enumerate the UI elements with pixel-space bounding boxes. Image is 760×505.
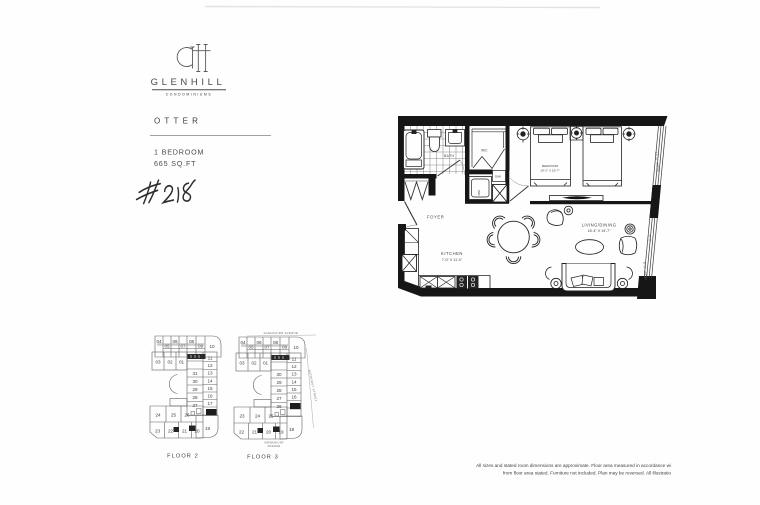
svg-text:OTTER: OTTER	[154, 117, 202, 126]
svg-text:All sizes and stated room dime: All sizes and stated room dimensions are…	[476, 463, 671, 468]
svg-text:FOYER: FOYER	[427, 215, 444, 220]
svg-text:21: 21	[182, 429, 188, 434]
svg-text:22: 22	[168, 429, 174, 434]
svg-text:FLOOR 3: FLOOR 3	[247, 455, 279, 461]
svg-text:5'-0": 5'-0"	[647, 235, 652, 243]
svg-text:1 BEDROOM: 1 BEDROOM	[154, 148, 204, 157]
svg-text:BEDROOM: BEDROOM	[542, 164, 558, 168]
svg-text:LIVING/DINING: LIVING/DINING	[582, 223, 617, 228]
svg-text:02: 02	[251, 361, 257, 366]
svg-text:28: 28	[192, 395, 198, 400]
svg-text:30: 30	[192, 379, 198, 384]
svg-text:24: 24	[255, 414, 261, 419]
svg-text:GLENCAIRN AVENUE: GLENCAIRN AVENUE	[264, 331, 299, 335]
svg-text:31: 31	[192, 371, 198, 376]
svg-text:AVENUE: AVENUE	[267, 444, 280, 448]
svg-text:26: 26	[184, 413, 190, 418]
svg-text:23: 23	[155, 429, 161, 434]
svg-text:29: 29	[276, 380, 282, 385]
svg-text:02: 02	[167, 360, 173, 365]
svg-text:10: 10	[293, 345, 299, 350]
svg-text:D/W: D/W	[495, 175, 501, 179]
svg-text:18: 18	[289, 427, 295, 432]
svg-text:FLOOR 2: FLOOR 2	[167, 454, 199, 460]
svg-text:23: 23	[239, 414, 245, 419]
svg-text:16: 16	[207, 394, 213, 399]
svg-text:W/D: W/D	[477, 190, 481, 195]
svg-text:BATH: BATH	[444, 154, 455, 158]
svg-text:13: 13	[291, 372, 297, 377]
svg-text:15: 15	[291, 387, 297, 392]
svg-text:14: 14	[207, 378, 213, 383]
svg-text:25: 25	[268, 414, 274, 419]
svg-text:12: 12	[291, 364, 297, 369]
svg-text:21: 21	[252, 430, 258, 435]
svg-text:GLENHILL: GLENHILL	[151, 77, 226, 88]
svg-text:11: 11	[292, 357, 297, 362]
svg-text:17: 17	[207, 401, 213, 406]
svg-text:665 SQ.FT: 665 SQ.FT	[154, 159, 196, 168]
svg-text:26: 26	[276, 404, 282, 409]
svg-text:27: 27	[192, 403, 198, 408]
svg-text:11: 11	[208, 356, 213, 361]
svg-text:25: 25	[171, 413, 177, 418]
svg-text:29: 29	[192, 387, 198, 392]
svg-text:16: 16	[291, 395, 297, 400]
svg-text:28: 28	[276, 388, 282, 393]
svg-text:15: 15	[207, 386, 213, 391]
svg-text:22: 22	[239, 430, 245, 435]
svg-text:W/C: W/C	[481, 149, 488, 153]
svg-text:24: 24	[155, 413, 161, 418]
svg-text:from floor area stated. Furnit: from floor area stated. Furniture not in…	[503, 471, 671, 476]
svg-text:7'-0" X 11'-0": 7'-0" X 11'-0"	[442, 258, 463, 262]
svg-text:30: 30	[276, 372, 282, 377]
svg-text:20: 20	[266, 430, 272, 435]
svg-text:12: 12	[207, 363, 213, 368]
svg-text:01: 01	[263, 361, 269, 366]
svg-text:03: 03	[155, 360, 161, 365]
svg-text:CONDOMINIUMS: CONDOMINIUMS	[166, 93, 213, 97]
svg-text:KITCHEN: KITCHEN	[441, 251, 463, 256]
svg-text:16'-4" X 19'-7": 16'-4" X 19'-7"	[588, 229, 611, 233]
svg-text:01: 01	[179, 360, 185, 365]
svg-text:03: 03	[239, 361, 245, 366]
svg-text:BATHURST STREET: BATHURST STREET	[308, 369, 319, 402]
svg-text:14: 14	[291, 379, 297, 384]
svg-text:27: 27	[276, 396, 282, 401]
svg-text:10: 10	[209, 344, 215, 349]
svg-text:13: 13	[207, 371, 213, 376]
svg-text:10'-2" X 16'-7": 10'-2" X 16'-7"	[540, 169, 560, 173]
svg-text:19: 19	[205, 426, 211, 431]
